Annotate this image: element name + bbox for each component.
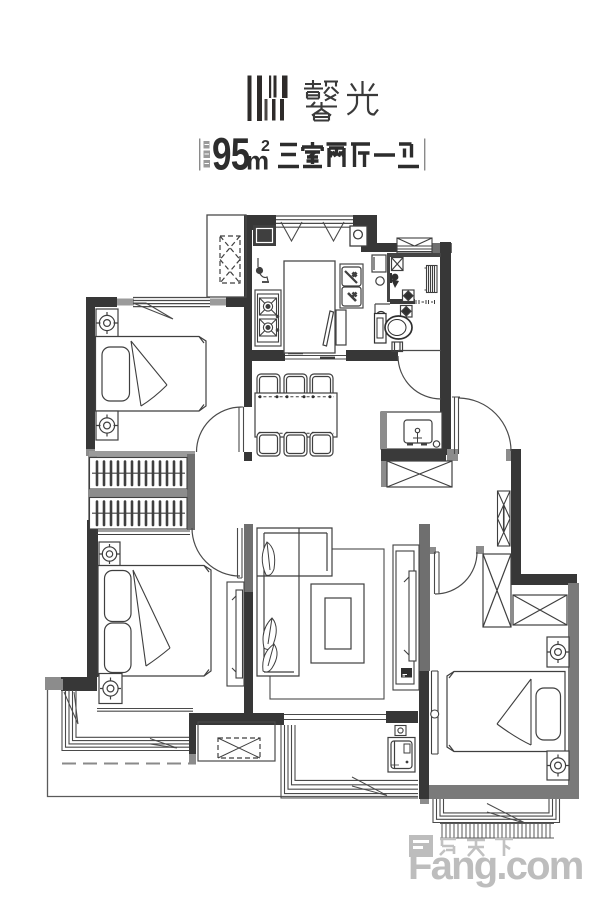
svg-text:95: 95	[212, 128, 250, 179]
svg-text:2: 2	[261, 138, 270, 155]
svg-text:Fang.com: Fang.com	[408, 844, 583, 888]
